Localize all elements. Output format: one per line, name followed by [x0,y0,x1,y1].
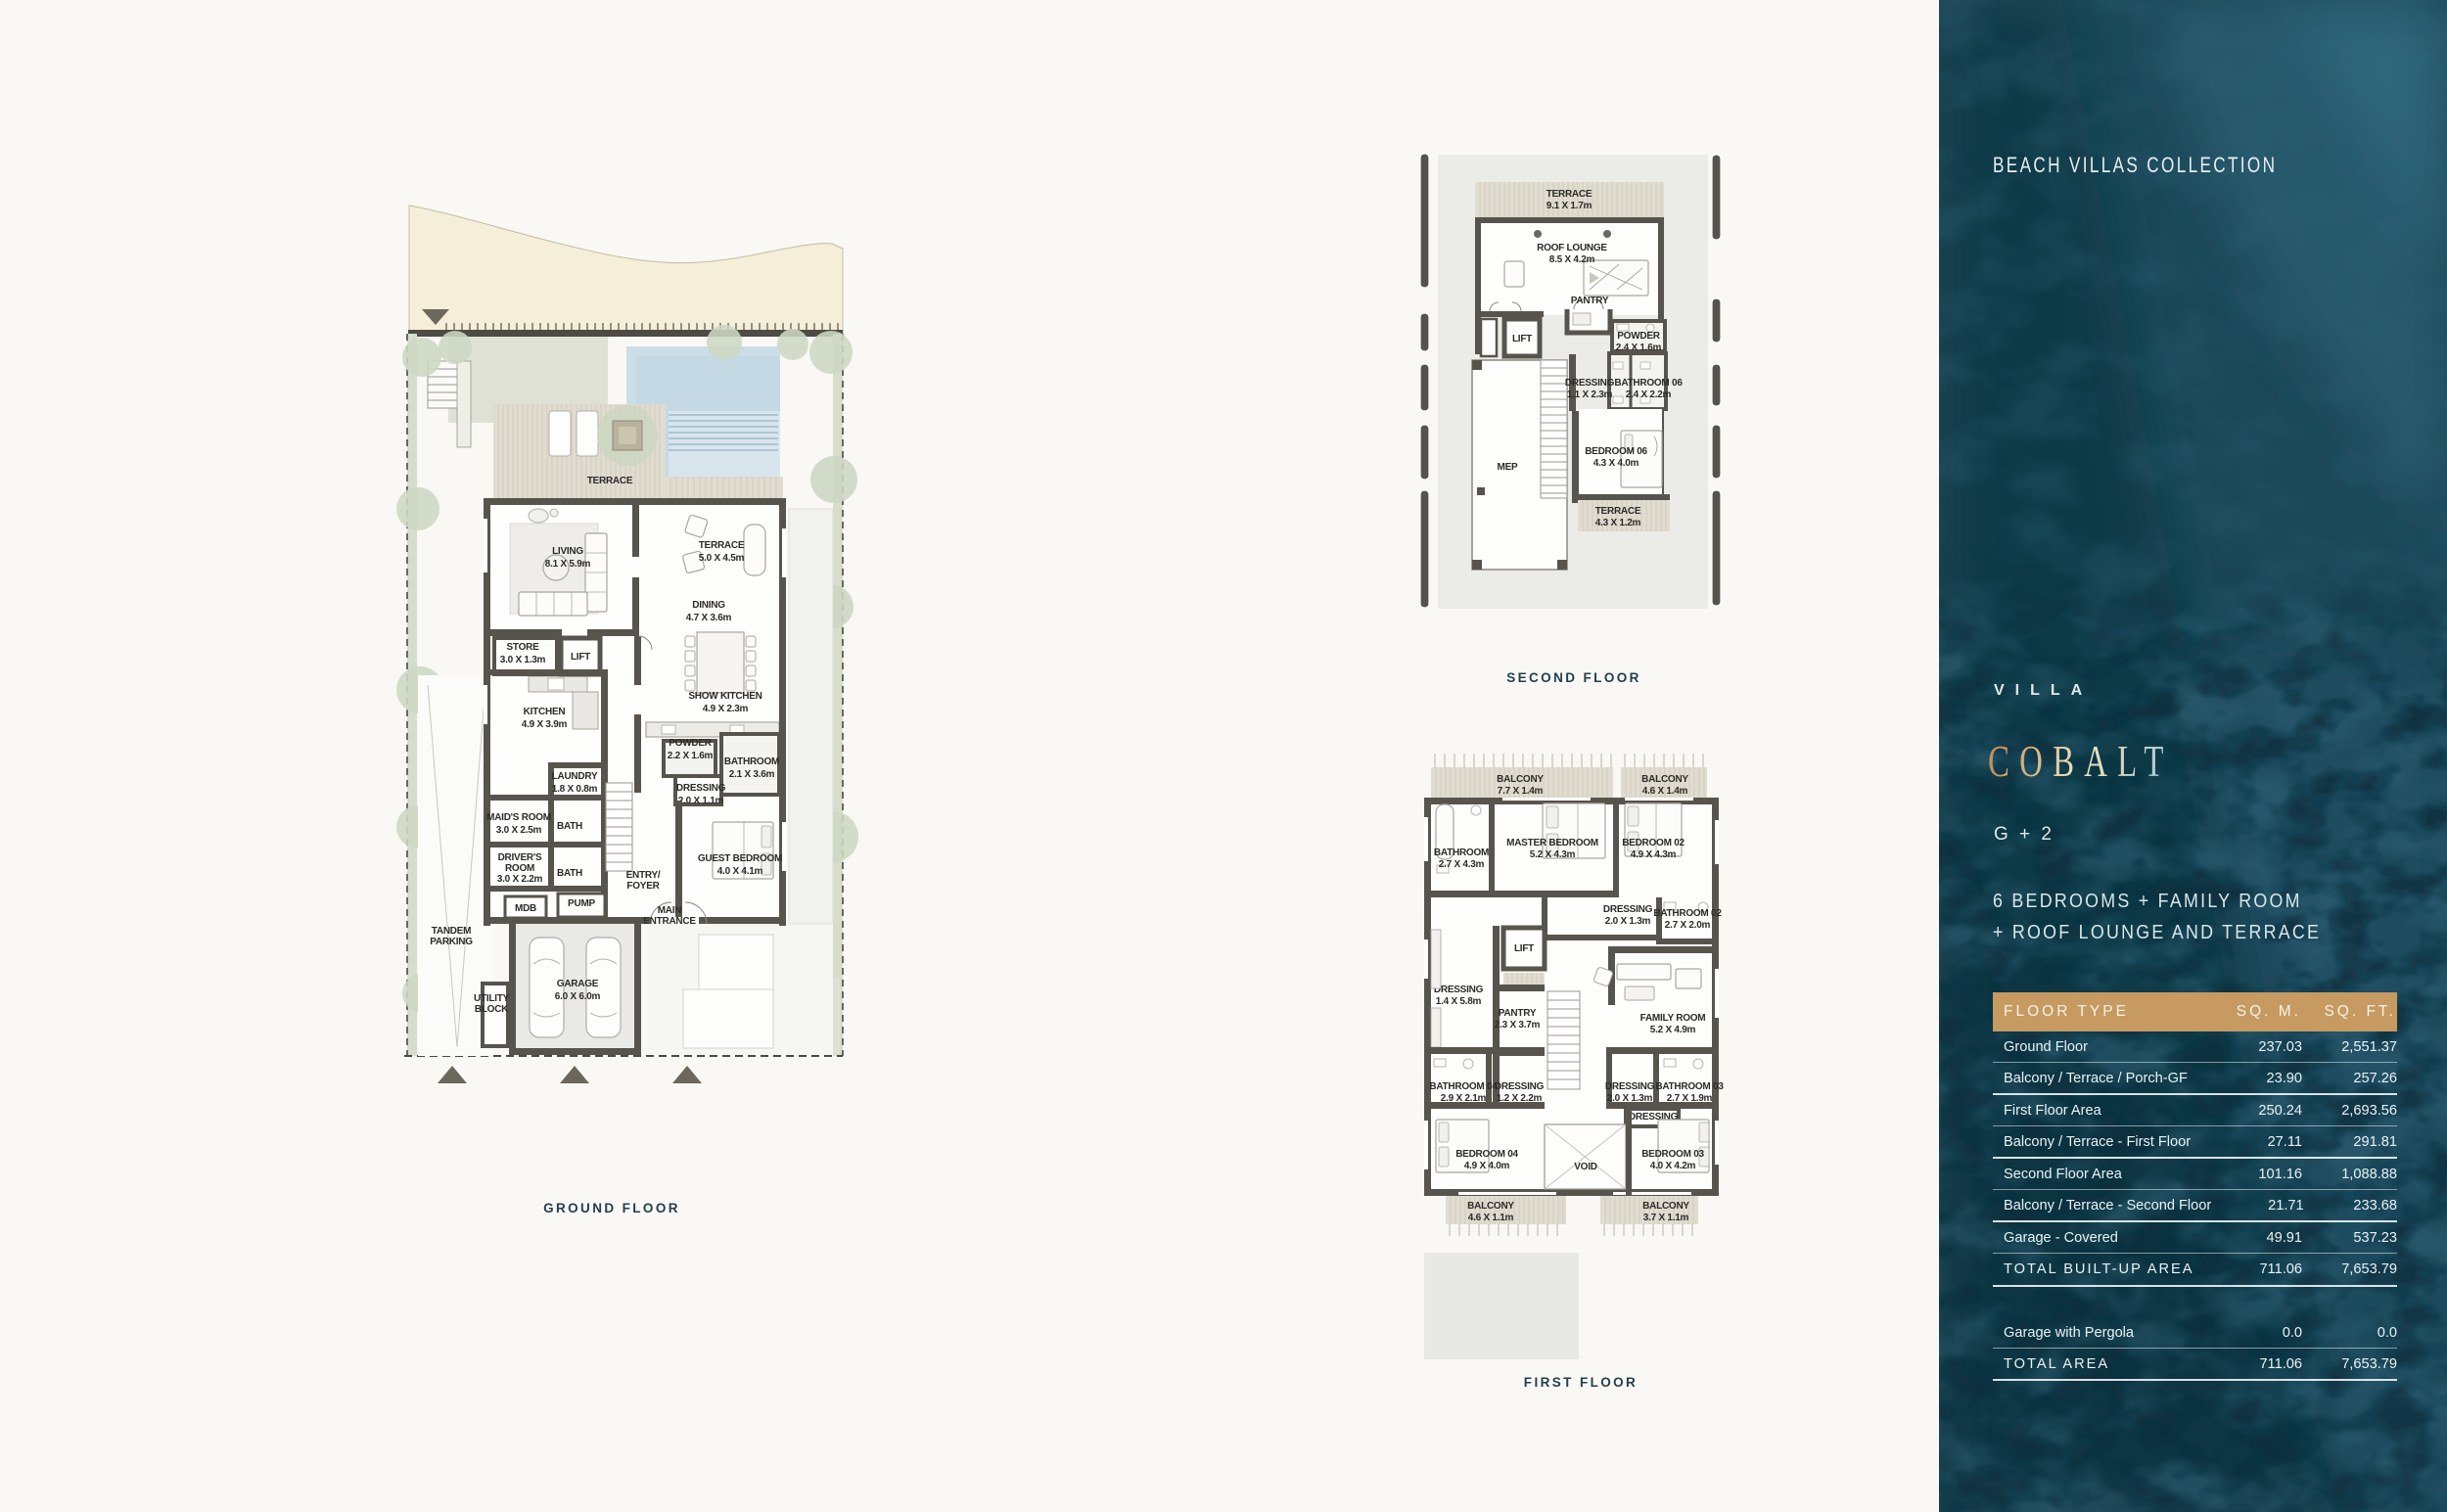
svg-text:BATHROOM 06: BATHROOM 06 [1614,378,1683,389]
svg-text:1.1 X 2.3m: 1.1 X 2.3m [1567,389,1613,400]
svg-text:2.1 X 3.6m: 2.1 X 3.6m [729,769,775,780]
svg-text:PANTRY: PANTRY [1499,1008,1537,1019]
svg-text:BATHROOM: BATHROOM [724,756,779,767]
svg-text:BALCONY: BALCONY [1497,774,1544,785]
svg-text:LIFT: LIFT [571,652,590,663]
svg-text:1.2 X 2.2m: 1.2 X 2.2m [1497,1093,1543,1104]
svg-text:SHOW KITCHEN: SHOW KITCHEN [688,691,762,702]
svg-text:ROOM: ROOM [505,863,534,874]
svg-text:LIVING: LIVING [552,546,583,557]
svg-text:DRESSING: DRESSING [1495,1081,1545,1092]
svg-text:DINING: DINING [692,600,725,611]
svg-text:DRESSING: DRESSING [1605,1081,1655,1092]
svg-text:4.9 X 2.3m: 4.9 X 2.3m [703,704,749,714]
svg-text:BALCONY: BALCONY [1467,1201,1514,1212]
svg-text:BALCONY: BALCONY [1641,774,1688,785]
svg-text:FIRST FLOOR: FIRST FLOOR [1524,1375,1638,1390]
svg-text:3.7 X 1.1m: 3.7 X 1.1m [1643,1213,1689,1223]
svg-text:BALCONY: BALCONY [1642,1201,1689,1212]
svg-text:3.0 X 2.2m: 3.0 X 2.2m [497,874,543,885]
svg-text:BEDROOM 06: BEDROOM 06 [1585,446,1647,457]
svg-text:TERRACE: TERRACE [587,476,633,486]
svg-text:BEDROOM 04: BEDROOM 04 [1455,1149,1518,1160]
svg-text:4.9 X 4.0m: 4.9 X 4.0m [1464,1161,1510,1171]
svg-text:DRESSING: DRESSING [676,783,726,794]
svg-text:BEDROOM 02: BEDROOM 02 [1622,838,1685,848]
svg-text:FAMILY ROOM: FAMILY ROOM [1640,1013,1706,1024]
svg-text:DRESSING: DRESSING [1603,904,1653,915]
svg-text:4.7 X 3.6m: 4.7 X 3.6m [686,613,732,623]
svg-text:POWDER: POWDER [1617,331,1661,342]
svg-text:4.9 X 4.3m: 4.9 X 4.3m [1631,849,1677,860]
svg-text:DRESSING: DRESSING [1565,378,1615,389]
svg-text:MAIN: MAIN [658,905,682,916]
svg-text:PUMP: PUMP [568,898,595,909]
svg-text:3.0 X 1.3m: 3.0 X 1.3m [500,655,546,665]
svg-text:ENTRANCE: ENTRANCE [643,916,696,927]
svg-text:2.7 X 2.0m: 2.7 X 2.0m [1665,920,1711,931]
svg-text:BEDROOM 03: BEDROOM 03 [1641,1149,1704,1160]
svg-text:BATHROOM 02: BATHROOM 02 [1653,908,1722,919]
svg-text:PANTRY: PANTRY [1571,296,1609,306]
svg-text:ROOF LOUNGE: ROOF LOUNGE [1537,243,1607,253]
svg-text:2.7 X 4.3m: 2.7 X 4.3m [1439,859,1485,870]
svg-text:FOYER: FOYER [626,881,660,892]
svg-text:1.4 X 5.8m: 1.4 X 5.8m [1436,996,1482,1007]
svg-text:MEP: MEP [1498,462,1519,473]
svg-text:2.0 X 1.3m: 2.0 X 1.3m [1605,916,1651,927]
svg-text:8.1 X 5.9m: 8.1 X 5.9m [545,559,591,570]
svg-text:8.5 X 4.2m: 8.5 X 4.2m [1549,254,1595,265]
svg-text:2.0 X 1.3m: 2.0 X 1.3m [1607,1093,1653,1104]
svg-text:TANDEM: TANDEM [432,926,472,937]
svg-text:MASTER BEDROOM: MASTER BEDROOM [1506,838,1598,848]
svg-text:9.1 X 1.7m: 9.1 X 1.7m [1547,201,1593,211]
svg-text:2.7 X 1.9m: 2.7 X 1.9m [1667,1093,1713,1104]
svg-text:3.0 X 2.5m: 3.0 X 2.5m [496,825,542,836]
svg-text:4.3 X 1.2m: 4.3 X 1.2m [1595,518,1641,528]
svg-text:STORE: STORE [506,642,539,653]
svg-text:POWDER: POWDER [669,738,713,749]
svg-text:2.2 X 1.6m: 2.2 X 1.6m [668,751,714,761]
svg-text:2.3 X 3.7m: 2.3 X 3.7m [1495,1020,1541,1031]
svg-text:1.8 X 0.8m: 1.8 X 0.8m [552,784,598,795]
svg-text:4.6 X 1.1m: 4.6 X 1.1m [1468,1213,1514,1223]
svg-text:7.7 X 1.4m: 7.7 X 1.4m [1498,786,1544,797]
svg-text:5.2 X 4.9m: 5.2 X 4.9m [1650,1025,1696,1035]
svg-text:4.0 X 4.1m: 4.0 X 4.1m [717,866,763,877]
svg-text:6.0 X 6.0m: 6.0 X 6.0m [555,991,601,1002]
svg-text:VOID: VOID [1574,1162,1596,1172]
svg-text:TERRACE: TERRACE [1595,506,1641,517]
svg-text:KITCHEN: KITCHEN [524,707,566,717]
svg-text:5.2 X 4.3m: 5.2 X 4.3m [1530,849,1576,860]
svg-text:BATH: BATH [557,868,582,879]
svg-text:DRESSING: DRESSING [1434,985,1484,995]
svg-text:GARAGE: GARAGE [557,979,599,989]
svg-text:SECOND FLOOR: SECOND FLOOR [1506,670,1641,685]
svg-text:PARKING: PARKING [430,937,473,947]
svg-text:4.0 X 4.2m: 4.0 X 4.2m [1650,1161,1696,1171]
svg-text:ENTRY/: ENTRY/ [626,870,661,881]
svg-text:LAUNDRY: LAUNDRY [552,771,598,782]
svg-text:UTILITY: UTILITY [474,993,510,1004]
svg-text:MDB: MDB [515,903,536,914]
svg-text:LIFT: LIFT [1514,943,1534,954]
svg-text:TERRACE: TERRACE [699,540,745,551]
svg-text:BATHROOM 03: BATHROOM 03 [1655,1081,1724,1092]
svg-text:4.9 X 3.9m: 4.9 X 3.9m [522,719,568,730]
svg-text:BLOCK: BLOCK [475,1004,509,1015]
svg-text:2.9 X 2.1m: 2.9 X 2.1m [1441,1093,1487,1104]
svg-text:5.0 X 4.5m: 5.0 X 4.5m [699,553,745,564]
svg-text:GUEST BEDROOM: GUEST BEDROOM [698,853,782,864]
svg-text:4.3 X 4.0m: 4.3 X 4.0m [1593,458,1639,469]
svg-text:DRIVER'S: DRIVER'S [498,852,542,863]
svg-text:TERRACE: TERRACE [1547,189,1593,200]
svg-text:MAID'S ROOM: MAID'S ROOM [486,812,551,823]
svg-text:2.4 X 1.6m: 2.4 X 1.6m [1616,343,1662,353]
svg-text:BATH: BATH [557,821,582,832]
svg-text:LIFT: LIFT [1512,334,1532,344]
svg-text:BATHROOM: BATHROOM [1434,848,1489,858]
svg-text:2.0 X 1.1m: 2.0 X 1.1m [678,796,724,806]
svg-text:4.6 X 1.4m: 4.6 X 1.4m [1642,786,1688,797]
svg-text:BATHROOM 04: BATHROOM 04 [1429,1081,1498,1092]
svg-text:GROUND FLOOR: GROUND FLOOR [543,1201,680,1215]
svg-text:2.4 X 2.2m: 2.4 X 2.2m [1626,389,1672,400]
